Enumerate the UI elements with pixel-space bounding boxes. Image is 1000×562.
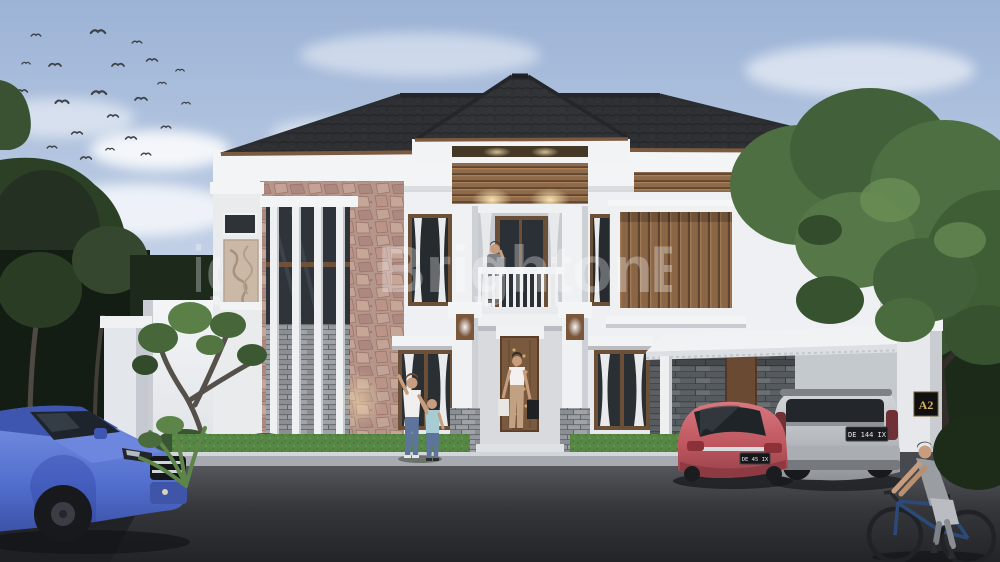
fin-header-ledge — [260, 196, 358, 207]
ground-window-right — [588, 336, 654, 430]
entrance-portico — [448, 162, 592, 460]
louver-window — [606, 200, 746, 328]
shopping-bag-white — [498, 399, 509, 416]
portico-pilaster-right — [558, 206, 592, 460]
balcony-railing — [470, 267, 570, 315]
wood-frieze — [448, 162, 592, 213]
upper-window-left — [408, 214, 452, 306]
plaque-text: A2 — [919, 398, 934, 412]
red-plate-text: DE 45 IX — [742, 457, 769, 463]
small-upper-window — [224, 214, 256, 234]
shopping-bag-black — [527, 400, 539, 419]
upper-window-right — [590, 214, 612, 306]
rear-window — [786, 399, 884, 426]
carved-relief-panel — [224, 240, 258, 308]
portico-pilaster-left — [448, 206, 482, 460]
silver-suv: DE 144 IX — [770, 389, 906, 491]
tail-light-right — [764, 443, 782, 453]
gable-vent-slot — [452, 146, 588, 157]
silver-plate-text: DE 144 IX — [848, 431, 887, 439]
house-number-plaque: A2 — [914, 392, 938, 416]
architectural-rendering: A2 DE 144 IX — [0, 0, 1000, 562]
red-license-plate: DE 45 IX — [740, 453, 770, 464]
silver-license-plate: DE 144 IX — [846, 427, 888, 441]
tail-light-left — [687, 441, 704, 451]
